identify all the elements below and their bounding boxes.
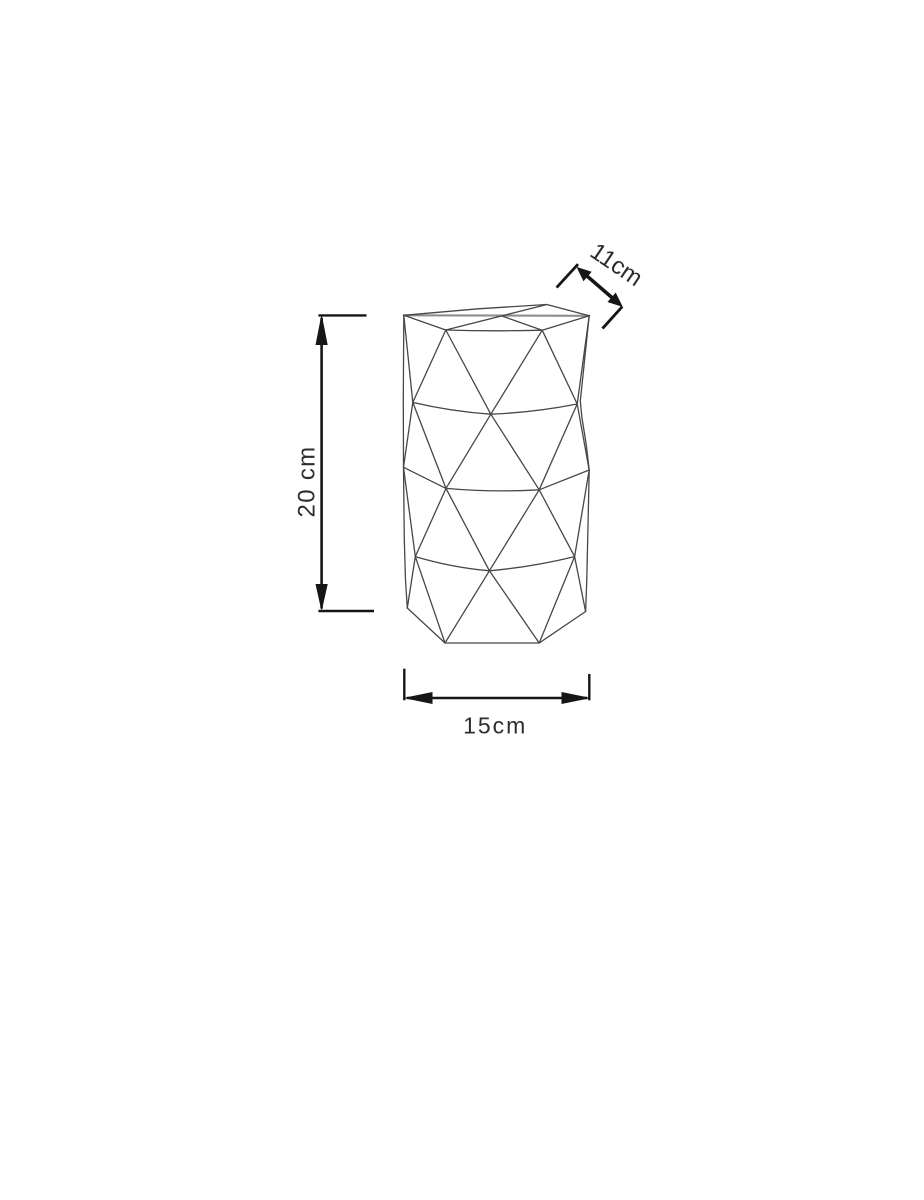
- svg-text:20 cm: 20 cm: [294, 446, 321, 518]
- svg-text:15cm: 15cm: [463, 713, 527, 739]
